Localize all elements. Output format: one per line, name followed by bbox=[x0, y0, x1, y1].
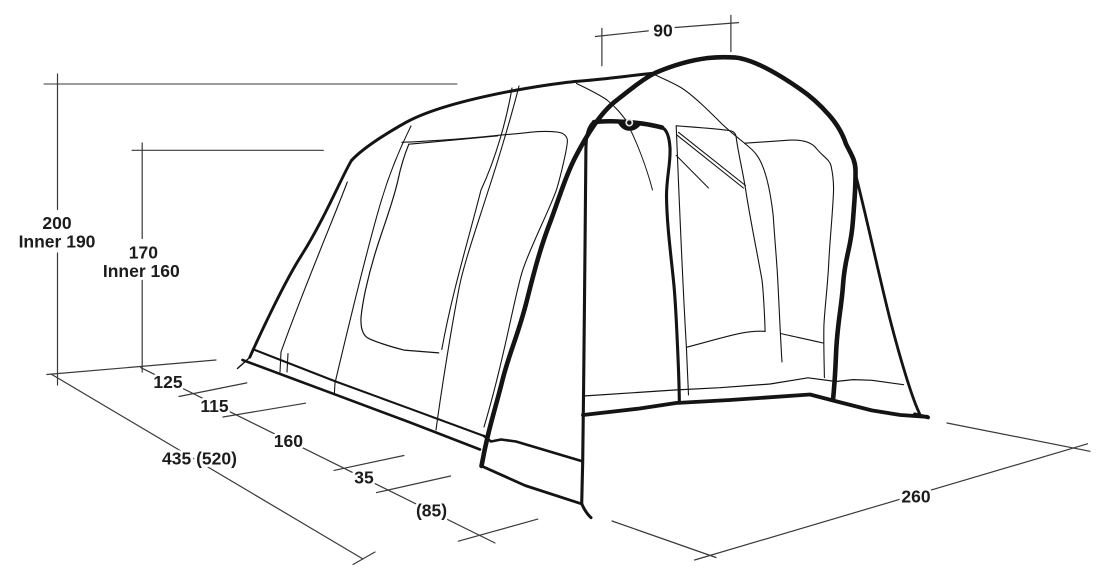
svg-text:170: 170 bbox=[129, 242, 158, 262]
svg-text:90: 90 bbox=[653, 21, 673, 41]
svg-text:125: 125 bbox=[153, 372, 182, 392]
svg-text:260: 260 bbox=[901, 487, 930, 507]
svg-text:35: 35 bbox=[354, 468, 374, 488]
svg-text:(85): (85) bbox=[416, 501, 447, 521]
svg-text:115: 115 bbox=[200, 396, 228, 416]
svg-text:Inner 190: Inner 190 bbox=[19, 231, 96, 251]
svg-text:200: 200 bbox=[42, 213, 71, 233]
svg-text:435 (520): 435 (520) bbox=[162, 449, 237, 469]
svg-text:Inner 160: Inner 160 bbox=[103, 261, 180, 281]
svg-text:160: 160 bbox=[274, 431, 303, 451]
